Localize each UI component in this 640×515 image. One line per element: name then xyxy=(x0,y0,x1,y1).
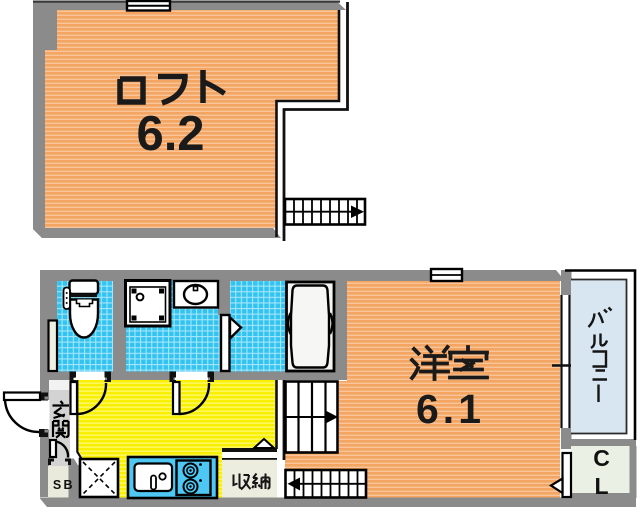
svg-text:L: L xyxy=(594,473,608,499)
svg-text:C: C xyxy=(593,445,610,471)
svg-text:B: B xyxy=(63,478,72,492)
svg-text:S: S xyxy=(53,478,61,492)
svg-text:6.2: 6.2 xyxy=(136,107,204,161)
svg-text:6.1: 6.1 xyxy=(416,386,485,432)
